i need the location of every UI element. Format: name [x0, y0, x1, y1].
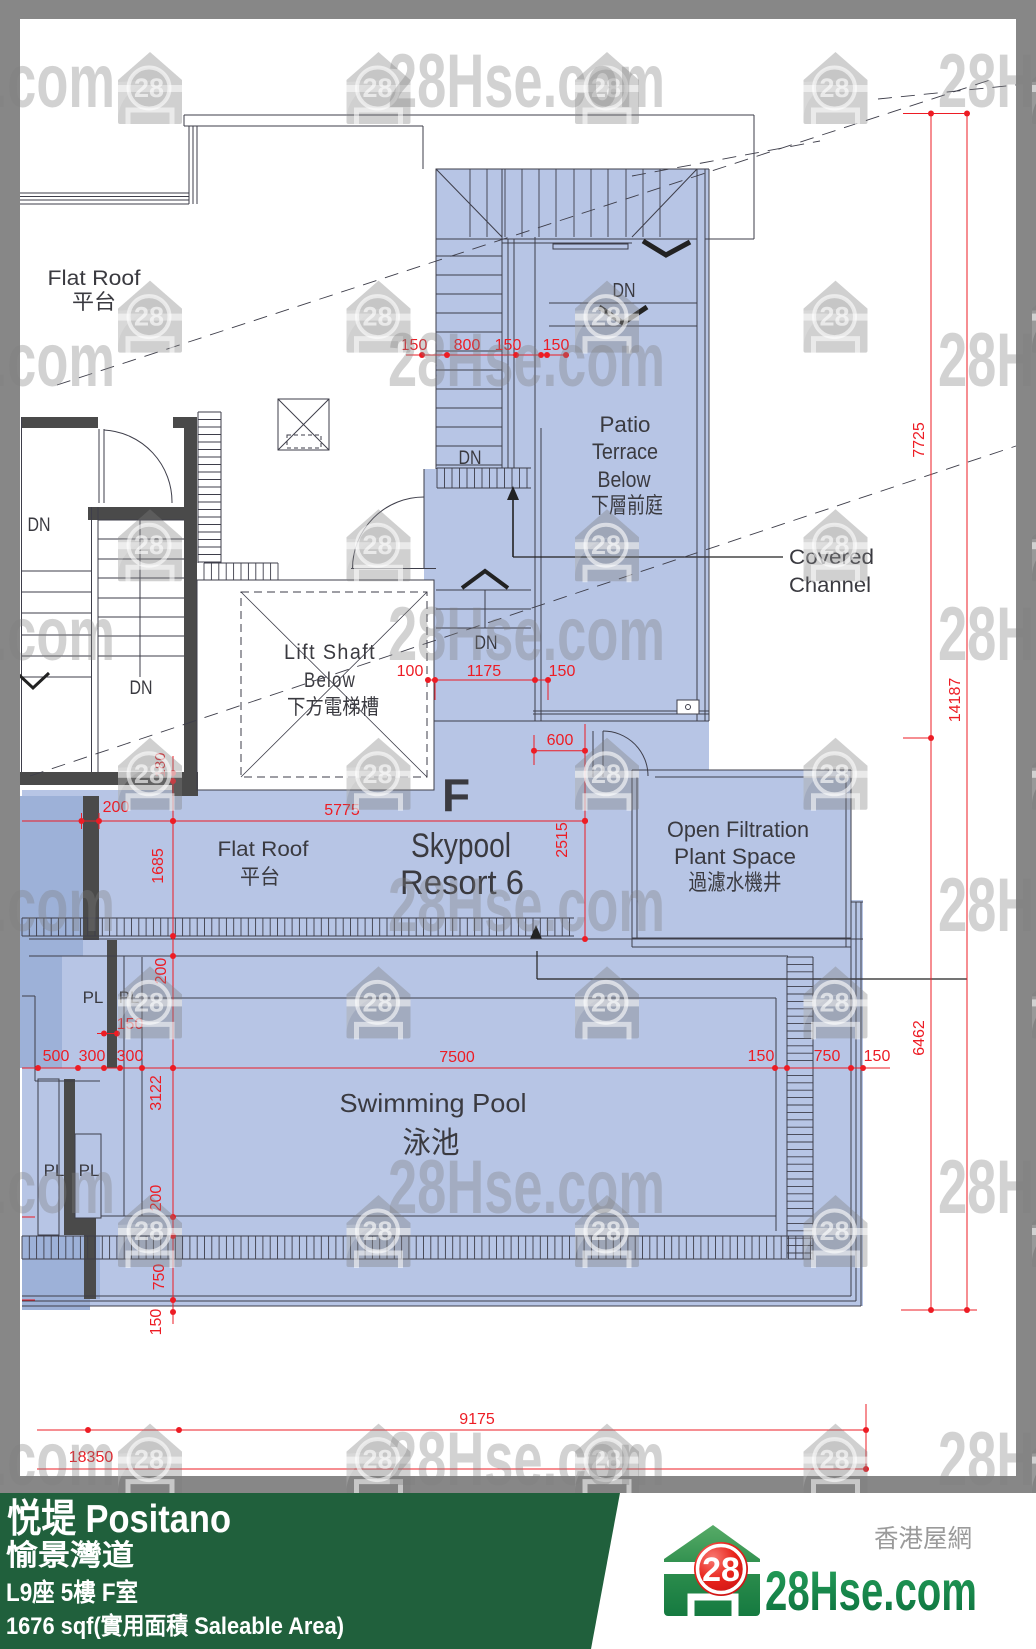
svg-text:28Hse.com: 28Hse.com	[388, 863, 665, 948]
svg-text:28: 28	[702, 1551, 740, 1589]
svg-text:28: 28	[134, 73, 164, 103]
svg-text:28Hse.com: 28Hse.com	[938, 39, 1036, 124]
svg-text:28: 28	[819, 1445, 849, 1475]
svg-text:600: 600	[547, 732, 574, 749]
svg-text:28Hse.com: 28Hse.com	[938, 592, 1036, 677]
svg-text:28Hse.com: 28Hse.com	[938, 1145, 1036, 1230]
svg-text:150: 150	[148, 1309, 165, 1336]
svg-text:28: 28	[362, 987, 392, 1017]
svg-text:28: 28	[134, 530, 164, 560]
svg-text:28Hse.com: 28Hse.com	[765, 1559, 977, 1622]
svg-text:500: 500	[43, 1048, 70, 1065]
svg-text:28: 28	[362, 759, 392, 789]
svg-text:2515: 2515	[554, 822, 571, 858]
svg-text:3122: 3122	[148, 1075, 165, 1111]
svg-text:F: F	[442, 769, 470, 821]
svg-text:150: 150	[864, 1048, 891, 1065]
svg-text:DN: DN	[130, 678, 153, 699]
svg-text:PL: PL	[83, 988, 104, 1007]
svg-text:悦堤 Positano: 悦堤 Positano	[7, 1498, 231, 1541]
svg-text:L9座 5樓 F室: L9座 5樓 F室	[6, 1578, 138, 1607]
svg-text:28: 28	[134, 759, 164, 789]
svg-text:28Hse.com: 28Hse.com	[0, 39, 115, 124]
svg-text:28Hse.com: 28Hse.com	[0, 863, 115, 948]
svg-text:28: 28	[819, 759, 849, 789]
svg-text:28Hse.com: 28Hse.com	[0, 1417, 115, 1502]
svg-text:Below: Below	[304, 669, 356, 692]
svg-text:Lift Shaft: Lift Shaft	[284, 641, 376, 664]
svg-text:28Hse.com: 28Hse.com	[0, 592, 115, 677]
svg-text:28Hse.com: 28Hse.com	[388, 1417, 665, 1502]
svg-text:28: 28	[819, 987, 849, 1017]
svg-text:Skypool: Skypool	[411, 827, 511, 865]
svg-text:平台: 平台	[72, 291, 116, 314]
svg-text:Swimming Pool: Swimming Pool	[340, 1088, 527, 1118]
svg-text:7725: 7725	[911, 422, 928, 458]
svg-text:1676 sqf(實用面積 Saleable Area): 1676 sqf(實用面積 Saleable Area)	[6, 1612, 344, 1640]
svg-text:28: 28	[134, 987, 164, 1017]
svg-text:28: 28	[134, 302, 164, 332]
svg-text:28: 28	[591, 987, 621, 1017]
svg-text:28Hse.com: 28Hse.com	[0, 1145, 115, 1230]
svg-text:1685: 1685	[150, 848, 167, 884]
svg-text:28Hse.com: 28Hse.com	[388, 1145, 665, 1230]
svg-text:DN: DN	[28, 515, 51, 536]
svg-text:過濾水機井: 過濾水機井	[689, 870, 782, 895]
svg-text:愉景灣道: 愉景灣道	[6, 1538, 134, 1572]
svg-text:28: 28	[134, 1216, 164, 1246]
svg-text:DN: DN	[459, 448, 482, 469]
svg-text:28: 28	[362, 530, 392, 560]
svg-text:Terrace: Terrace	[592, 439, 658, 464]
svg-text:300: 300	[117, 1048, 144, 1065]
svg-text:28Hse.com: 28Hse.com	[938, 863, 1036, 948]
svg-text:28Hse.com: 28Hse.com	[388, 318, 665, 403]
svg-text:28: 28	[591, 530, 621, 560]
svg-text:28: 28	[819, 73, 849, 103]
svg-text:7500: 7500	[439, 1049, 475, 1066]
svg-text:下方電梯槽: 下方電梯槽	[287, 696, 379, 719]
svg-text:750: 750	[151, 1264, 168, 1291]
svg-text:Plant Space: Plant Space	[674, 844, 796, 869]
svg-text:28Hse.com: 28Hse.com	[938, 318, 1036, 403]
svg-text:Below: Below	[598, 467, 651, 492]
svg-text:Flat Roof: Flat Roof	[48, 267, 141, 290]
svg-text:28Hse.com: 28Hse.com	[388, 39, 665, 124]
svg-text:750: 750	[814, 1048, 841, 1065]
svg-text:Patio: Patio	[600, 412, 651, 437]
svg-text:28Hse.com: 28Hse.com	[938, 1417, 1036, 1502]
svg-text:14187: 14187	[947, 678, 964, 723]
svg-text:28: 28	[819, 1216, 849, 1246]
svg-text:28Hse.com: 28Hse.com	[388, 592, 665, 677]
svg-text:28Hse.com: 28Hse.com	[0, 318, 115, 403]
svg-text:香港屋網: 香港屋網	[874, 1525, 972, 1553]
svg-text:300: 300	[79, 1048, 106, 1065]
svg-text:28: 28	[591, 759, 621, 789]
svg-text:Flat Roof: Flat Roof	[218, 838, 309, 861]
svg-text:6462: 6462	[911, 1020, 928, 1056]
svg-text:Open Filtration: Open Filtration	[667, 817, 809, 842]
svg-text:平台: 平台	[240, 866, 280, 889]
svg-text:28: 28	[819, 530, 849, 560]
svg-text:150: 150	[748, 1048, 775, 1065]
svg-text:28: 28	[134, 1445, 164, 1475]
svg-text:28: 28	[819, 302, 849, 332]
